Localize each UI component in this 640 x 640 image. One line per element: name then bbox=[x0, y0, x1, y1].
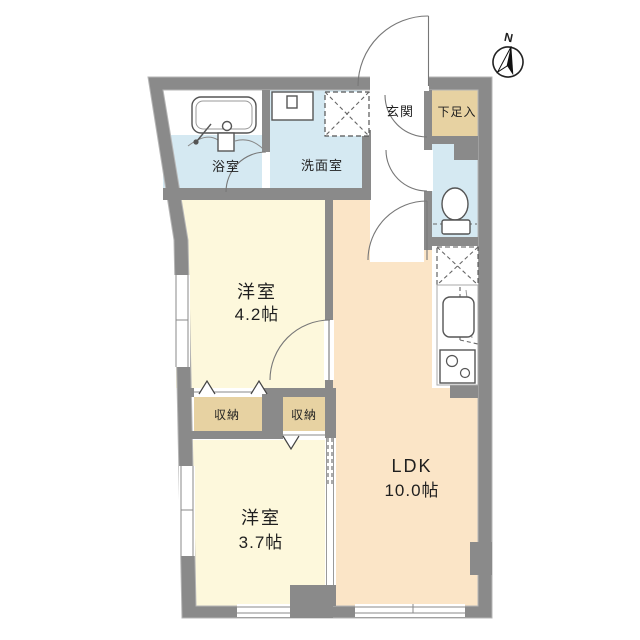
toilet-door-opening bbox=[423, 150, 433, 191]
western-room-b-label: 洋室 bbox=[241, 508, 281, 528]
floor-plan-page: N 浴室 洗面室 玄関 下足入 洋室 4.2帖 収納 収納 洋室 3.7帖 LD… bbox=[0, 0, 640, 640]
compass-north-label: N bbox=[503, 30, 515, 46]
western-room-a-size: 4.2帖 bbox=[235, 305, 280, 324]
floor-plan: N 浴室 洗面室 玄関 下足入 洋室 4.2帖 収納 収納 洋室 3.7帖 LD… bbox=[0, 0, 640, 640]
wall-hall-toilet-upper bbox=[424, 90, 432, 150]
kitchen-counter bbox=[437, 285, 478, 385]
window-room-a bbox=[174, 275, 190, 367]
entrance-label: 玄関 bbox=[386, 104, 414, 119]
wall-washroom-hall bbox=[362, 130, 371, 200]
wall-south-pillar bbox=[290, 585, 333, 618]
wall-closet-bottom bbox=[186, 431, 283, 439]
window-ldk-south bbox=[355, 604, 465, 617]
stove-icon bbox=[440, 350, 475, 383]
wall-toilet-south bbox=[432, 237, 478, 246]
window-room-b-south bbox=[237, 604, 290, 617]
wall-room-a-ldk-lower bbox=[325, 380, 333, 388]
wall-sanitary-south bbox=[163, 188, 370, 200]
shoe-cabinet-label: 下足入 bbox=[437, 105, 476, 119]
washbasin-icon bbox=[272, 92, 313, 120]
compass-north-icon: N bbox=[490, 29, 529, 80]
entrance-opening bbox=[370, 75, 429, 91]
wall-kitchen-end-panel bbox=[450, 384, 478, 398]
wall-below-shoe-cabinet bbox=[432, 136, 478, 144]
closet-b-label: 収納 bbox=[291, 408, 317, 422]
wall-bath-washroom bbox=[262, 90, 270, 152]
wall-closet-east bbox=[325, 388, 336, 438]
closet-a-label: 収納 bbox=[214, 408, 240, 422]
western-room-a-label: 洋室 bbox=[237, 282, 277, 302]
wall-toilet-notch bbox=[454, 144, 478, 160]
washroom-label: 洗面室 bbox=[301, 158, 343, 173]
wall-ldk-notch bbox=[470, 542, 492, 575]
western-room-b-size: 3.7帖 bbox=[239, 533, 284, 552]
wall-hall-toilet-lower bbox=[424, 191, 432, 250]
wall-room-a-ldk-upper bbox=[325, 198, 333, 320]
refrigerator-space-icon bbox=[437, 247, 478, 285]
washing-machine-pan-icon bbox=[325, 92, 369, 136]
window-room-b bbox=[179, 466, 195, 556]
ldk-label: LDK bbox=[391, 456, 432, 476]
bathroom-label: 浴室 bbox=[212, 159, 240, 174]
kitchen-sink-icon bbox=[443, 297, 474, 337]
ldk-size: 10.0帖 bbox=[384, 481, 439, 500]
wall-closet-top-left bbox=[186, 388, 194, 397]
wall-closet-top-right bbox=[262, 388, 326, 397]
